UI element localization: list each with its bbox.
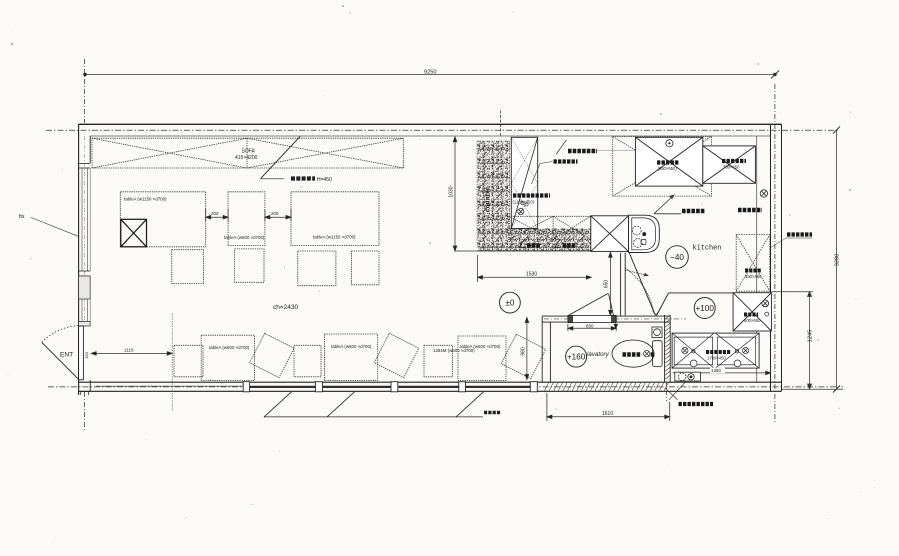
svg-text:tableA (w1150 ×d700): tableA (w1150 ×d700): [313, 235, 356, 240]
svg-text:(1200×450): (1200×450): [513, 200, 535, 205]
svg-text:tableA (w600 ×d700): tableA (w600 ×d700): [224, 235, 265, 240]
svg-text:650: 650: [604, 280, 610, 289]
svg-text:3280: 3280: [835, 254, 841, 266]
svg-text:+160: +160: [567, 353, 586, 362]
svg-text:±0: ±0: [505, 299, 514, 308]
svg-text:−40: −40: [670, 253, 684, 262]
svg-text:H=450: H=450: [317, 177, 332, 183]
svg-text:SOFA: SOFA: [242, 149, 256, 155]
svg-text:1030: 1030: [449, 186, 455, 197]
svg-text:1700×450: 1700×450: [707, 356, 726, 361]
svg-text:tableA (w600 ×d700): tableA (w600 ×d700): [331, 344, 372, 349]
svg-text:ENT: ENT: [60, 352, 73, 359]
svg-text:1610: 1610: [602, 411, 613, 417]
svg-text:1110: 1110: [124, 348, 134, 353]
svg-text:200: 200: [271, 211, 279, 216]
svg-text:ch=2430: ch=2430: [273, 304, 299, 311]
svg-text:fix: fix: [19, 214, 25, 220]
svg-text:1245: 1245: [808, 330, 814, 342]
svg-text:450×450: 450×450: [745, 274, 762, 279]
svg-text:650: 650: [586, 323, 594, 328]
svg-text:(950×650): (950×650): [658, 166, 678, 171]
svg-text:980: 980: [521, 347, 527, 356]
svg-text:1530: 1530: [526, 272, 537, 278]
svg-text:kitchen: kitchen: [693, 244, 722, 252]
svg-text:9250: 9250: [424, 70, 436, 76]
svg-text:1350: 1350: [711, 368, 722, 373]
svg-text:150: 150: [84, 351, 89, 358]
svg-text:tableA (w600 ×d700): tableA (w600 ×d700): [460, 344, 501, 349]
svg-text:tableA (w1150 ×d700): tableA (w1150 ×d700): [124, 197, 167, 202]
svg-text:200: 200: [211, 211, 219, 216]
svg-text:500×600: 500×600: [744, 318, 761, 323]
svg-text:415×4200: 415×4200: [235, 155, 258, 161]
svg-text:lavatory: lavatory: [587, 351, 610, 358]
svg-text:counter: counter: [486, 187, 492, 212]
svg-text:tableA (w600 ×d700): tableA (w600 ×d700): [209, 345, 250, 350]
svg-text:750×650: 750×650: [723, 165, 740, 170]
svg-text:+100: +100: [695, 304, 714, 313]
